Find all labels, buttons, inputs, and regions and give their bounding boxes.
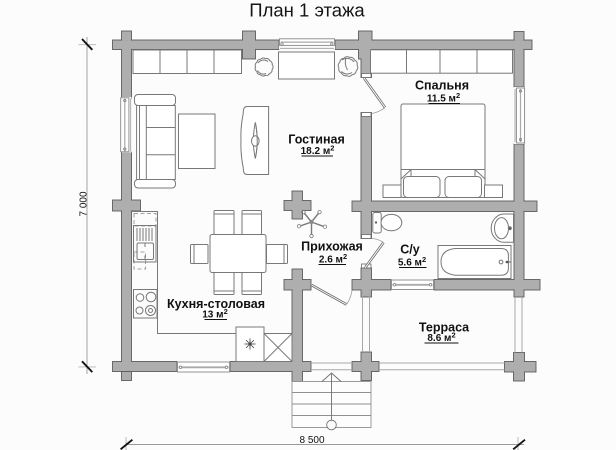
svg-text:Прихожая: Прихожая [301,240,363,254]
svg-text:8 500: 8 500 [299,435,324,446]
svg-text:Спальня: Спальня [415,79,469,93]
svg-text:Гостиная: Гостиная [288,133,345,147]
svg-text:План 1 этажа: План 1 этажа [249,0,365,21]
svg-text:С/у: С/у [400,243,420,257]
svg-text:18.2 м2: 18.2 м2 [301,144,335,158]
svg-text:7 000: 7 000 [79,191,90,216]
svg-text:5.6 м2: 5.6 м2 [398,255,426,269]
svg-text:8.6 м2: 8.6 м2 [427,331,455,345]
svg-text:2.6 м2: 2.6 м2 [319,252,347,266]
svg-text:11.5 м2: 11.5 м2 [427,91,460,105]
